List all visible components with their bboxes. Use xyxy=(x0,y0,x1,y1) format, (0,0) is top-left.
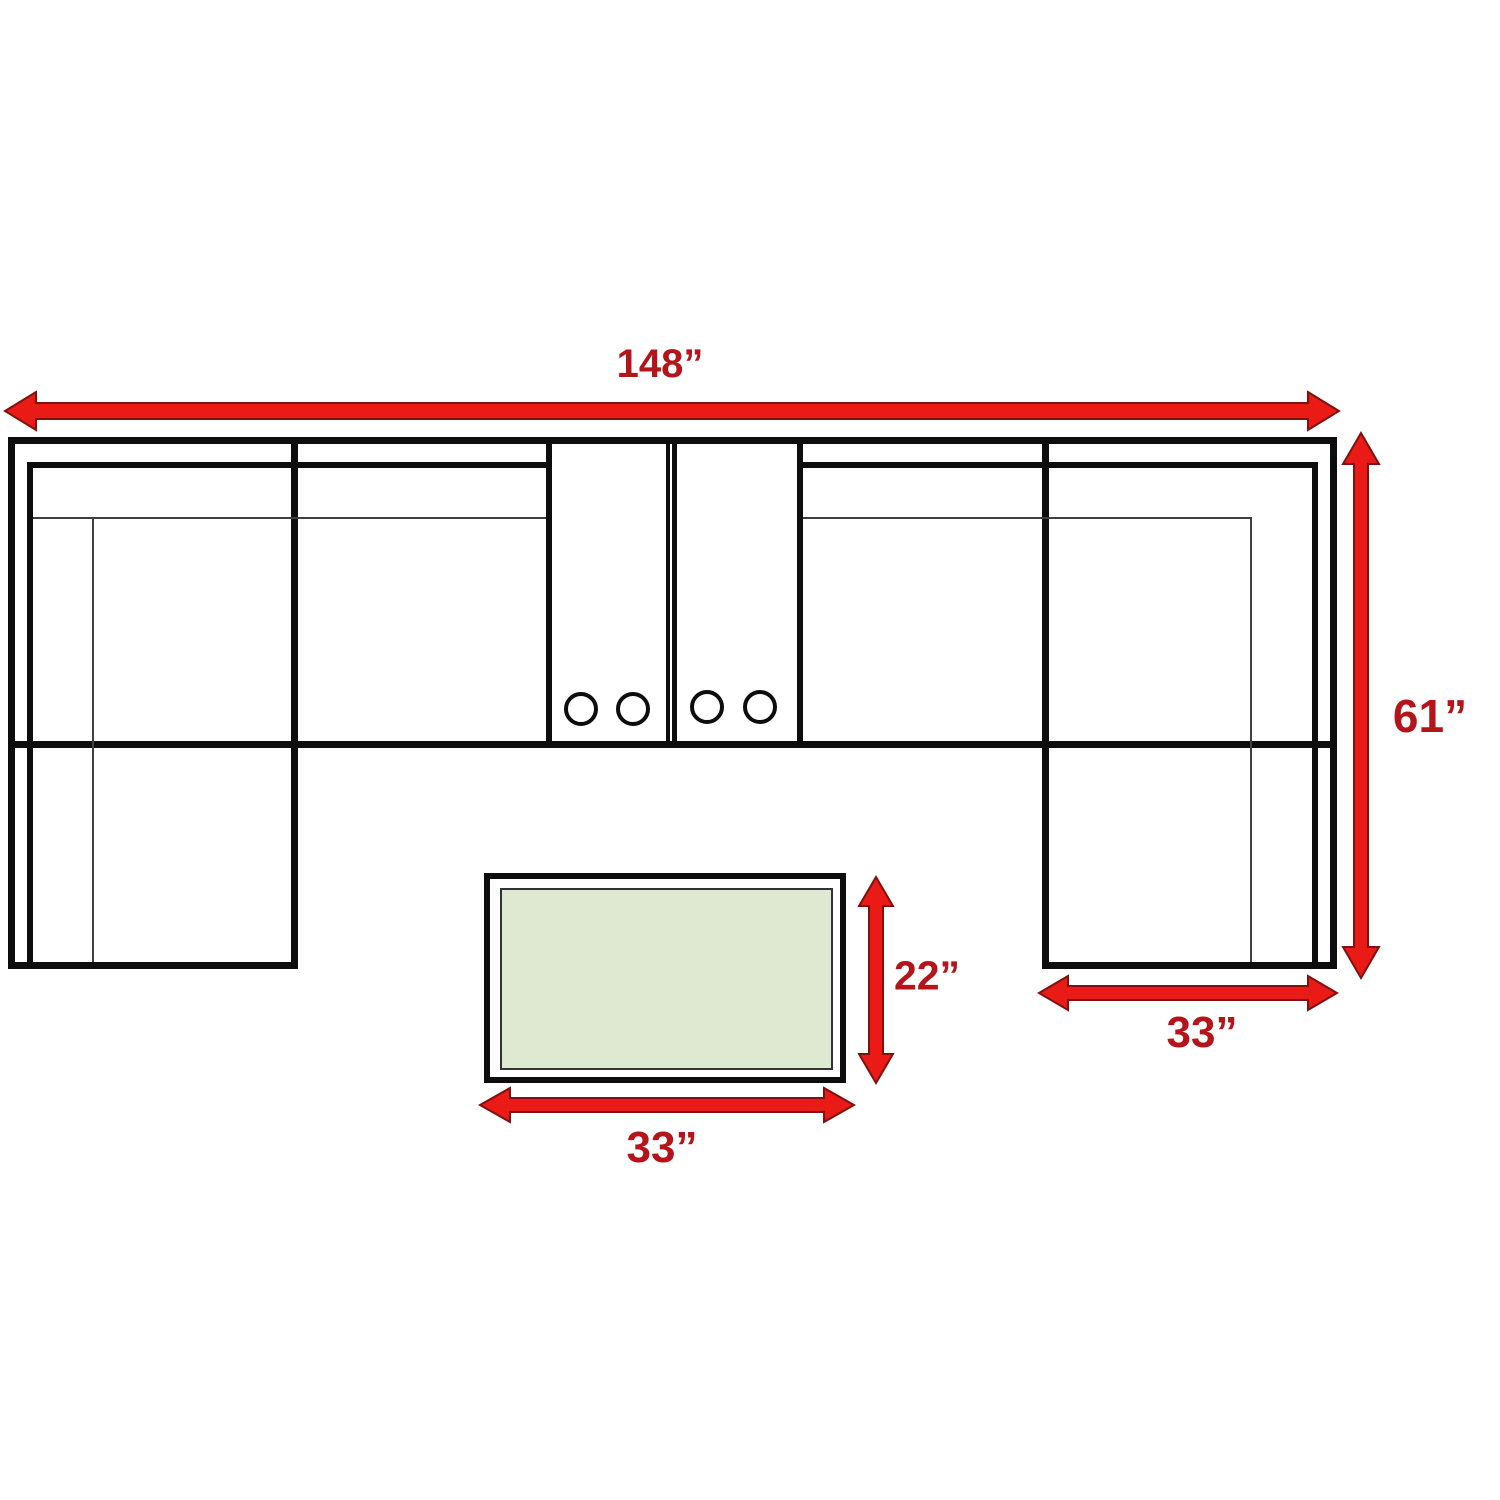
right-chaise-front-edge xyxy=(1042,962,1337,969)
table-width-arrow xyxy=(477,1085,857,1125)
table-depth-arrow xyxy=(856,874,896,1086)
left-back-cushion-seam xyxy=(33,517,546,519)
cup-holder-icon-3 xyxy=(690,690,724,724)
overall-width-arrow xyxy=(2,389,1342,433)
console-center-edge-a xyxy=(666,437,670,748)
overall-width-label: 148” xyxy=(617,344,704,384)
sofa-right-edge xyxy=(1330,437,1337,969)
overall-depth-arrow xyxy=(1338,431,1384,981)
left-chaise-front-edge xyxy=(8,962,298,969)
sectional-sofa-dimension-diagram: 148” 61” 33” 22” 33” xyxy=(0,0,1500,1500)
coffee-table-glass-top xyxy=(500,888,833,1070)
chaise-width-arrow xyxy=(1036,973,1340,1013)
left-back-rail xyxy=(27,462,552,468)
cup-holder-icon-2 xyxy=(616,692,650,726)
sofa-left-edge xyxy=(8,437,15,969)
right-chaise-cushion-seam xyxy=(1250,517,1252,962)
cup-holder-icon-4 xyxy=(743,690,777,724)
left-chaise-cushion-seam xyxy=(92,517,94,962)
overall-depth-label: 61” xyxy=(1393,693,1467,739)
table-depth-label: 22” xyxy=(894,956,960,997)
right-arm-rail xyxy=(1312,462,1318,962)
console-center-edge-b xyxy=(672,437,677,748)
right-back-rail xyxy=(797,462,1318,468)
cup-holder-icon-1 xyxy=(564,692,598,726)
left-arm-rail xyxy=(27,462,33,962)
right-back-cushion-seam xyxy=(803,517,1252,519)
chaise-width-label: 33” xyxy=(1167,1011,1238,1055)
table-width-label: 33” xyxy=(627,1126,698,1170)
console-right-edge xyxy=(797,437,803,748)
console-left-edge xyxy=(546,437,552,748)
